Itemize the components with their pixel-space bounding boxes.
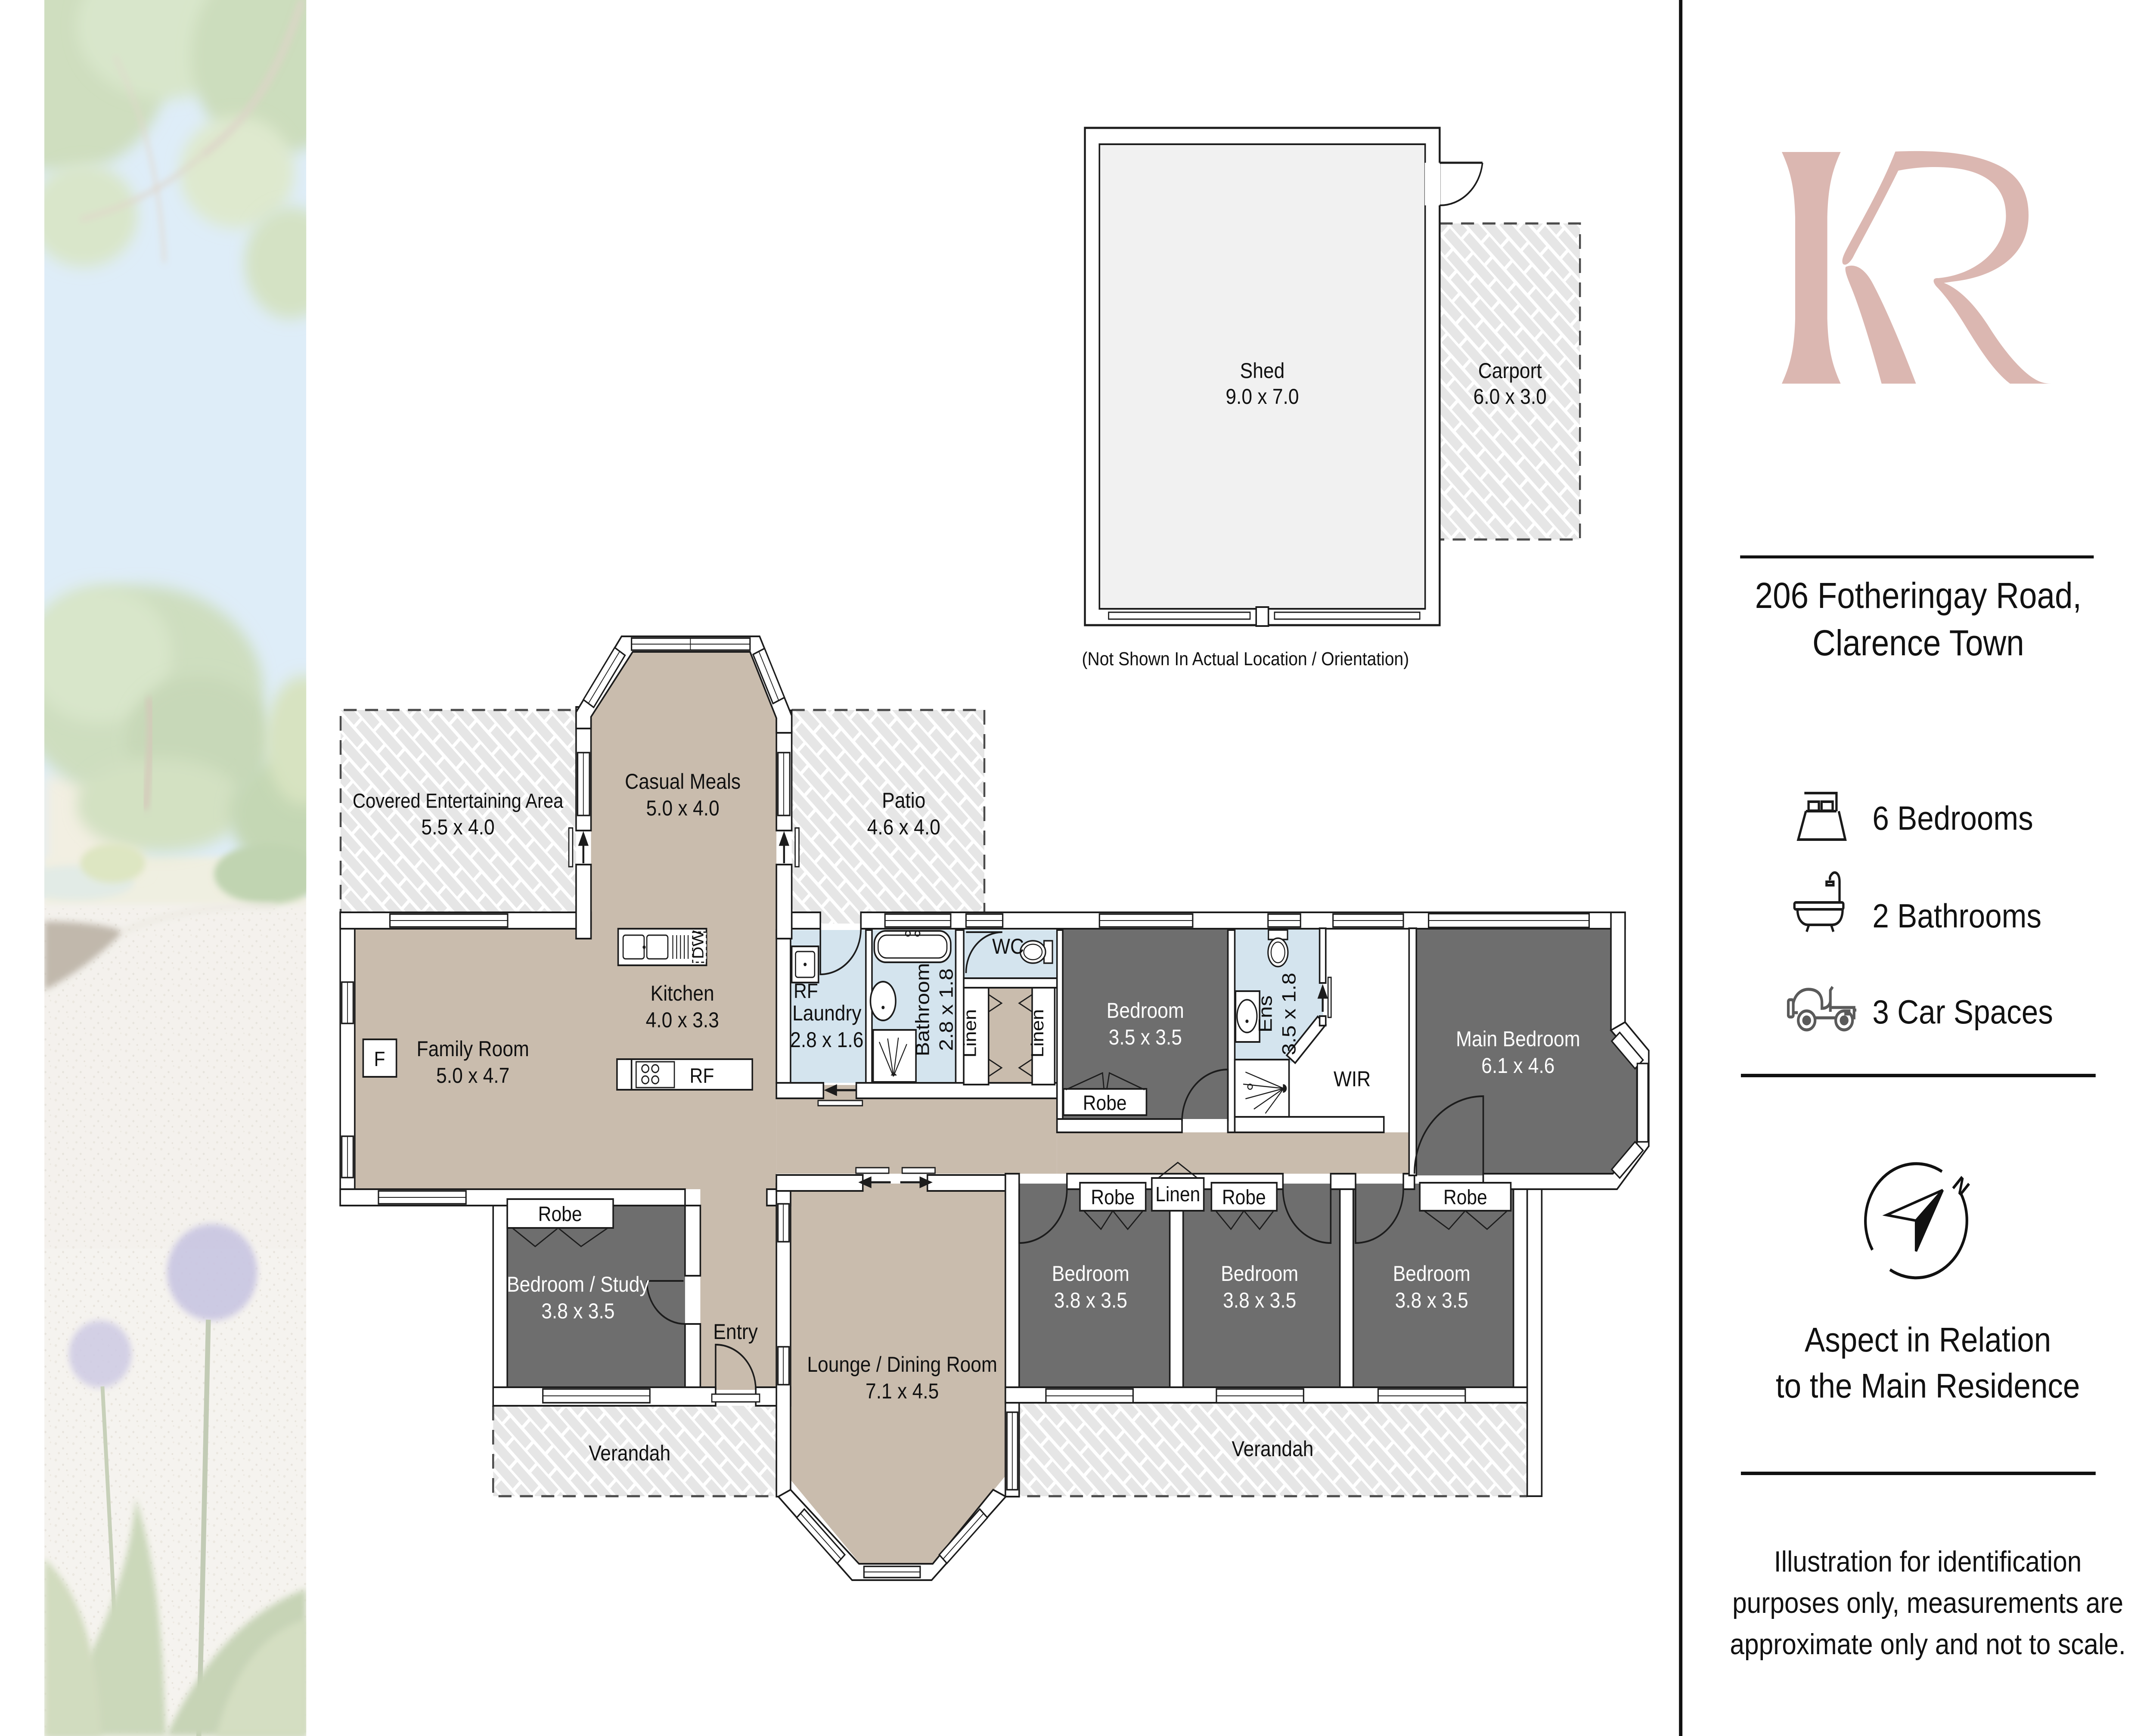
svg-text:2.8 x 1.6: 2.8 x 1.6: [790, 1028, 863, 1052]
svg-text:(Not Shown In Actual Location: (Not Shown In Actual Location / Orientat…: [1082, 648, 1409, 670]
svg-text:F: F: [374, 1048, 385, 1071]
svg-text:WIR: WIR: [1334, 1067, 1371, 1091]
svg-text:9.0 x 7.0: 9.0 x 7.0: [1225, 385, 1299, 409]
svg-text:Aspect in Relation: Aspect in Relation: [1805, 1321, 2051, 1359]
svg-text:WC: WC: [992, 935, 1024, 959]
svg-text:to the Main Residence: to the Main Residence: [1776, 1367, 2080, 1405]
svg-text:Linen: Linen: [961, 1009, 980, 1058]
svg-text:Lounge / Dining Room: Lounge / Dining Room: [807, 1353, 997, 1377]
svg-text:7.1 x 4.5: 7.1 x 4.5: [866, 1379, 939, 1404]
svg-text:Kitchen: Kitchen: [651, 982, 714, 1006]
svg-text:Shed: Shed: [1240, 359, 1285, 383]
svg-text:Clarence Town: Clarence Town: [1812, 623, 2024, 663]
svg-text:5.5 x 4.0: 5.5 x 4.0: [421, 815, 494, 840]
svg-text:Robe: Robe: [1222, 1186, 1266, 1209]
svg-text:5.0 x 4.7: 5.0 x 4.7: [436, 1064, 509, 1088]
svg-text:Linen: Linen: [1155, 1183, 1200, 1206]
svg-text:6.1 x 4.6: 6.1 x 4.6: [1481, 1054, 1554, 1078]
svg-text:Verandah: Verandah: [589, 1441, 670, 1466]
svg-text:206 Fotheringay Road,: 206 Fotheringay Road,: [1755, 575, 2082, 616]
svg-text:DW: DW: [690, 930, 707, 959]
svg-text:Robe: Robe: [538, 1203, 582, 1226]
svg-text:5.0 x 4.0: 5.0 x 4.0: [646, 797, 719, 821]
svg-text:Covered Entertaining Area: Covered Entertaining Area: [353, 790, 564, 812]
svg-text:Bathroom: Bathroom: [912, 963, 934, 1057]
svg-text:Ens: Ens: [1255, 995, 1276, 1032]
svg-text:3.8 x 3.5: 3.8 x 3.5: [541, 1299, 614, 1324]
svg-text:4.0 x 3.3: 4.0 x 3.3: [646, 1008, 719, 1032]
svg-text:purposes only, measurements ar: purposes only, measurements are: [1732, 1587, 2123, 1619]
svg-text:Casual Meals: Casual Meals: [625, 770, 741, 794]
svg-text:Bedroom: Bedroom: [1221, 1262, 1298, 1286]
svg-text:Robe: Robe: [1083, 1091, 1127, 1115]
svg-text:Bedroom: Bedroom: [1393, 1262, 1470, 1286]
svg-text:RF: RF: [690, 1064, 714, 1088]
svg-text:3.8 x 3.5: 3.8 x 3.5: [1054, 1289, 1127, 1313]
svg-text:4.6 x 4.0: 4.6 x 4.0: [867, 815, 940, 840]
svg-text:Bedroom / Study: Bedroom / Study: [507, 1273, 649, 1297]
svg-text:3.8 x 3.5: 3.8 x 3.5: [1395, 1289, 1468, 1313]
svg-text:Family Room: Family Room: [416, 1037, 529, 1061]
svg-text:Patio: Patio: [882, 789, 925, 813]
svg-text:Robe: Robe: [1091, 1186, 1135, 1209]
svg-text:Carport: Carport: [1478, 359, 1542, 383]
svg-text:3 Car Spaces: 3 Car Spaces: [1872, 993, 2053, 1031]
svg-text:Linen: Linen: [1028, 1009, 1047, 1058]
svg-text:Laundry: Laundry: [792, 1001, 862, 1026]
svg-text:Robe: Robe: [1443, 1186, 1487, 1209]
svg-text:Entry: Entry: [713, 1320, 758, 1344]
svg-text:6.0 x 3.0: 6.0 x 3.0: [1474, 385, 1547, 409]
svg-text:2.8 x 1.8: 2.8 x 1.8: [936, 968, 957, 1051]
svg-text:Bedroom: Bedroom: [1052, 1262, 1129, 1286]
svg-text:3.5 x 3.5: 3.5 x 3.5: [1109, 1026, 1182, 1050]
svg-text:2 Bathrooms: 2 Bathrooms: [1872, 897, 2041, 935]
svg-text:Bedroom: Bedroom: [1107, 999, 1184, 1023]
svg-text:3.5 x 1.8: 3.5 x 1.8: [1278, 973, 1300, 1055]
svg-text:approximate only and not to sc: approximate only and not to scale.: [1730, 1628, 2125, 1661]
svg-text:Verandah: Verandah: [1232, 1437, 1313, 1461]
svg-text:6 Bedrooms: 6 Bedrooms: [1872, 799, 2033, 837]
svg-text:Illustration for identificatio: Illustration for identification: [1774, 1545, 2082, 1578]
svg-text:Main Bedroom: Main Bedroom: [1456, 1027, 1580, 1051]
svg-text:RF: RF: [794, 980, 818, 1003]
svg-text:3.8 x 3.5: 3.8 x 3.5: [1223, 1289, 1296, 1313]
